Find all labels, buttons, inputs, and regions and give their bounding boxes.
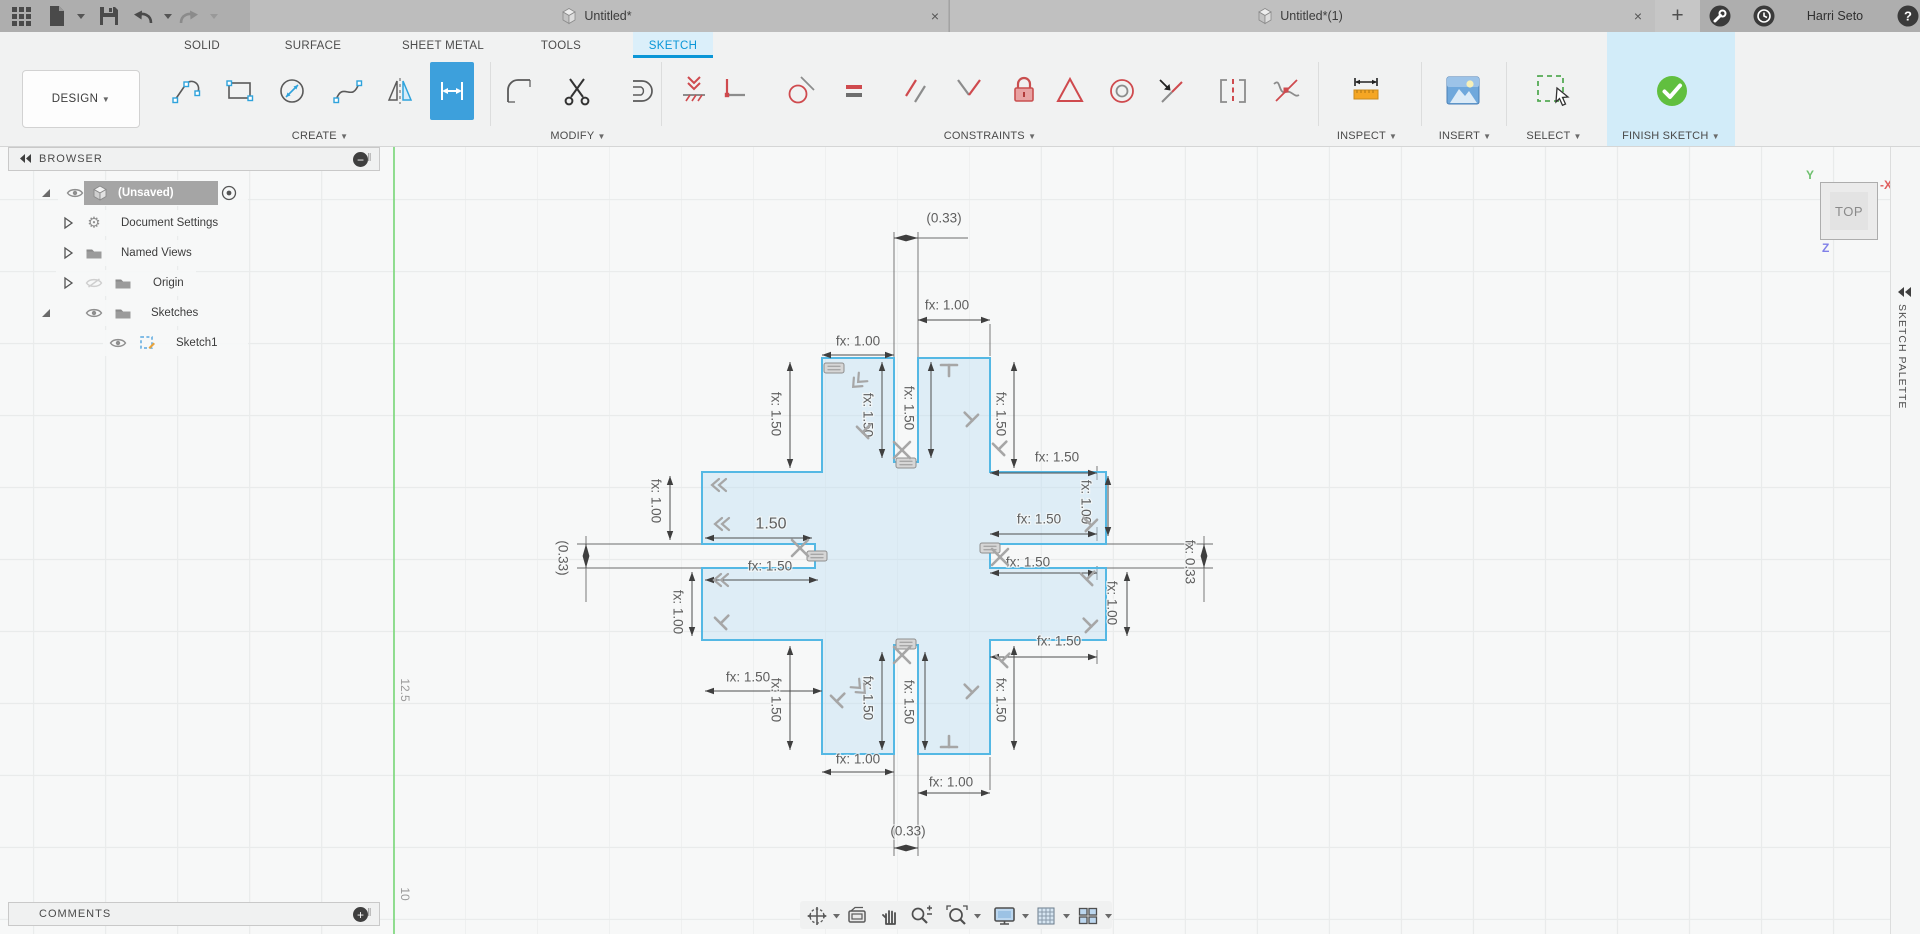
row-label: Document Settings xyxy=(121,210,218,236)
dimension-value[interactable]: fx: 1.50 xyxy=(994,392,1009,436)
visibility-eye-icon[interactable] xyxy=(67,187,84,199)
document-cube-icon xyxy=(91,184,109,202)
dimension-value[interactable]: fx: 1.50 xyxy=(1006,555,1050,570)
svg-text:?: ? xyxy=(1904,9,1912,24)
ribbon-tab-surface[interactable]: SURFACE xyxy=(285,34,341,58)
navigation-bar xyxy=(800,901,1112,929)
group-divider xyxy=(1318,62,1319,126)
browser-row-unsaved[interactable]: (Unsaved) xyxy=(8,180,380,206)
constraint-glyph-eq[interactable] xyxy=(824,363,844,373)
dimension-value[interactable]: fx: 1.00 xyxy=(1105,581,1120,625)
browser-title: BROWSER xyxy=(39,148,103,170)
redo-caret-icon[interactable] xyxy=(201,3,227,29)
comments-bar[interactable]: COMMENTS + ‖ xyxy=(8,902,380,926)
group-label-finish-sketch[interactable]: FINISH SKETCH ▼ xyxy=(1622,130,1720,142)
viewcube-face-label: TOP xyxy=(1821,183,1877,239)
group-label-modify[interactable]: MODIFY ▼ xyxy=(550,130,605,142)
expand-closed-icon[interactable] xyxy=(61,276,75,290)
tangent-tool[interactable] xyxy=(779,62,823,120)
grid-major-line-y xyxy=(393,147,395,934)
dimension-value[interactable]: fx: 1.50 xyxy=(769,392,784,436)
dimension-value[interactable]: (0.33) xyxy=(926,211,961,226)
spline-tool[interactable] xyxy=(326,62,370,120)
display-settings-caret-icon[interactable] xyxy=(1022,912,1030,920)
visibility-eye-icon[interactable] xyxy=(86,307,103,319)
row-label: Named Views xyxy=(121,240,192,266)
dimension-value[interactable]: fx: 1.00 xyxy=(929,775,973,790)
perpendicular-tool[interactable] xyxy=(947,62,991,120)
redo-icon[interactable] xyxy=(176,3,202,29)
expand-closed-icon[interactable] xyxy=(61,216,75,230)
dimension-value[interactable]: (0.33) xyxy=(890,824,925,839)
viewcube-y-axis-label: Y xyxy=(1806,168,1814,182)
dimension-value[interactable]: fx: 1.00 xyxy=(1079,480,1094,524)
expand-open-icon[interactable] xyxy=(39,306,53,320)
visibility-eye-off-icon[interactable] xyxy=(86,277,103,289)
job-status-clock-icon[interactable] xyxy=(1753,5,1775,27)
sketch-palette-tab[interactable]: SKETCH PALETTE xyxy=(1896,304,1908,409)
line-tool[interactable] xyxy=(166,62,210,120)
ribbon-tab-sketch[interactable]: SKETCH xyxy=(649,34,697,58)
browser-header[interactable]: BROWSER − ‖ xyxy=(8,147,380,171)
horizontal-vertical-tool[interactable] xyxy=(713,62,757,120)
group-label-create[interactable]: CREATE ▼ xyxy=(292,130,348,142)
palette-expand-icon[interactable] xyxy=(1897,286,1913,298)
display-settings-nav-icon[interactable] xyxy=(993,904,1017,928)
symmetry-tool[interactable] xyxy=(1048,62,1092,120)
dimension-value[interactable]: fx: 1.50 xyxy=(902,386,917,430)
viewports-nav-icon[interactable] xyxy=(1076,904,1100,928)
close-tab-2-icon[interactable]: × xyxy=(1630,8,1646,24)
document-cube-icon xyxy=(1256,6,1274,26)
dimension-value[interactable]: (0.33) xyxy=(556,540,571,575)
fit-nav-icon[interactable] xyxy=(945,904,969,928)
activate-radio-icon[interactable] xyxy=(221,185,237,201)
fillet-tool[interactable] xyxy=(497,62,541,120)
expand-open-icon[interactable] xyxy=(39,186,53,200)
fit-caret-icon[interactable] xyxy=(974,912,982,920)
pan-nav-icon[interactable] xyxy=(879,904,903,928)
circle-tool[interactable] xyxy=(270,62,314,120)
visibility-eye-icon[interactable] xyxy=(110,337,127,349)
group-divider xyxy=(1421,62,1422,126)
dimension-value[interactable]: fx: 1.00 xyxy=(836,334,880,349)
document-tab-title: Untitled* xyxy=(584,9,631,23)
insert-image-tool[interactable] xyxy=(1441,62,1485,120)
select-tool[interactable] xyxy=(1531,62,1575,120)
row-label: Origin xyxy=(153,270,184,296)
expand-closed-icon[interactable] xyxy=(61,246,75,260)
dimension-value[interactable]: fx: 1.00 xyxy=(836,752,880,767)
equal-tool[interactable] xyxy=(832,62,876,120)
browser-row-origin[interactable]: Origin xyxy=(8,270,380,296)
titlebar: Untitled* × Untitled*(1) × + Harri Seto … xyxy=(0,0,1920,32)
dimension-value[interactable]: fx: 1.00 xyxy=(925,298,969,313)
fix-unfix-tool[interactable] xyxy=(1002,62,1046,120)
collinear-tool[interactable] xyxy=(1211,62,1255,120)
grid-scale-label: 12.5 xyxy=(398,677,412,703)
undo-icon[interactable] xyxy=(130,3,156,29)
grid-settings-caret-icon[interactable] xyxy=(1063,912,1071,920)
finish-sketch-tool[interactable] xyxy=(1650,62,1694,120)
constraint-glyph-eq[interactable] xyxy=(980,543,1000,553)
offset-tool[interactable] xyxy=(618,62,662,120)
sketch-icon xyxy=(139,335,156,352)
dimension-value[interactable]: fx: 1.50 xyxy=(726,670,770,685)
document-cube-icon xyxy=(560,6,578,26)
constraint-glyph-eq[interactable] xyxy=(807,551,827,561)
measure-tool[interactable] xyxy=(1344,62,1388,120)
dimension-value[interactable]: fx: 1.50 xyxy=(748,559,792,574)
group-divider xyxy=(490,62,491,126)
row-label: (Unsaved) xyxy=(118,180,174,206)
browser-collapse-icon[interactable] xyxy=(19,153,33,164)
parallel-tool[interactable] xyxy=(894,62,938,120)
ribbon-tab-tools[interactable]: TOOLS xyxy=(541,34,581,58)
dimension-value[interactable]: fx: 1.50 xyxy=(994,678,1009,722)
save-icon[interactable] xyxy=(96,3,122,29)
dimension-value[interactable]: fx: 1.50 xyxy=(1037,634,1081,649)
sketch-dimension-tool[interactable] xyxy=(430,62,474,120)
dimension-value[interactable]: 1.50 xyxy=(755,516,786,533)
folder-icon xyxy=(115,307,132,320)
dimension-value[interactable]: fx: 1.50 xyxy=(861,676,876,720)
rectangle-tool[interactable] xyxy=(218,62,262,120)
viewcube-z-axis-label: Z xyxy=(1822,241,1829,255)
folder-icon xyxy=(86,247,103,260)
dimension-value[interactable]: fx: 0.33 xyxy=(1183,540,1198,584)
group-label-constraints[interactable]: CONSTRAINTS ▼ xyxy=(944,130,1036,142)
close-tab-1-icon[interactable]: × xyxy=(927,8,943,24)
document-tab-2[interactable]: Untitled*(1) xyxy=(950,0,1655,32)
mirror-tool[interactable] xyxy=(378,62,422,120)
coincident-tool[interactable] xyxy=(672,62,716,120)
file-menu-caret-icon[interactable] xyxy=(68,3,94,29)
orbit-nav-icon[interactable] xyxy=(805,904,829,928)
dimension-value[interactable]: fx: 1.50 xyxy=(1035,450,1079,465)
gear-icon: ⚙ xyxy=(87,216,100,231)
ribbon-toolbar: DESIGN ▼ SOLIDSURFACESHEET METALTOOLSSKE… xyxy=(0,32,1920,147)
group-divider xyxy=(1506,62,1507,126)
document-tab-1[interactable]: Untitled* xyxy=(250,0,948,32)
ribbon-tab-sheet-metal[interactable]: SHEET METAL xyxy=(402,34,484,58)
ribbon-tab-solid[interactable]: SOLID xyxy=(184,34,220,58)
concentric-tool[interactable] xyxy=(1100,62,1144,120)
viewports-caret-icon[interactable] xyxy=(1105,912,1113,920)
group-label-select[interactable]: SELECT ▼ xyxy=(1526,130,1581,142)
browser-row-sketch1[interactable]: Sketch1 xyxy=(8,330,380,356)
browser-row-named-views[interactable]: Named Views xyxy=(8,240,380,266)
comments-add-icon[interactable]: + xyxy=(353,907,368,922)
grid-scale-label: 10 xyxy=(398,881,412,907)
viewcube[interactable]: TOP xyxy=(1820,182,1878,240)
row-label: Sketches xyxy=(151,300,198,326)
fusion360-window: Untitled* × Untitled*(1) × + Harri Seto … xyxy=(0,0,1920,934)
workspace-dropdown[interactable]: DESIGN ▼ xyxy=(22,70,140,128)
comments-drag-grip[interactable]: ‖ xyxy=(367,907,372,919)
zoom-nav-icon[interactable] xyxy=(909,904,933,928)
group-label-inspect[interactable]: INSPECT ▼ xyxy=(1337,130,1397,142)
group-label-insert[interactable]: INSERT ▼ xyxy=(1439,130,1492,142)
row-label: Sketch1 xyxy=(176,330,218,356)
folder-icon xyxy=(115,277,132,290)
dimension-value[interactable]: fx: 1.50 xyxy=(902,680,917,724)
dimension-value[interactable]: fx: 1.00 xyxy=(671,590,686,634)
browser-drag-grip[interactable]: ‖ xyxy=(367,152,372,164)
constraint-glyph-eq[interactable] xyxy=(896,458,916,468)
comments-title: COMMENTS xyxy=(39,903,111,925)
document-tab-title: Untitled*(1) xyxy=(1280,9,1343,23)
constraint-glyph-eq[interactable] xyxy=(896,639,916,649)
user-account-button[interactable]: Harri Seto xyxy=(1800,0,1870,32)
dimension-value[interactable]: fx: 1.00 xyxy=(649,479,664,523)
dimension-value[interactable]: fx: 1.50 xyxy=(1017,512,1061,527)
extensions-icon[interactable] xyxy=(1709,5,1731,27)
file-menu-icon[interactable] xyxy=(44,3,70,29)
grid-settings-nav-icon[interactable] xyxy=(1034,904,1058,928)
app-grid-icon[interactable] xyxy=(8,3,34,29)
sketch-palette-strip xyxy=(1890,147,1920,934)
new-tab-button[interactable]: + xyxy=(1655,0,1700,32)
dimension-value[interactable]: fx: 1.50 xyxy=(769,678,784,722)
browser-row-document-settings[interactable]: ⚙Document Settings xyxy=(8,210,380,236)
midpoint-tool[interactable] xyxy=(1149,62,1193,120)
orbit-caret-icon[interactable] xyxy=(833,912,841,920)
browser-display-mode-icon[interactable]: − xyxy=(353,152,368,167)
browser-row-sketches[interactable]: Sketches xyxy=(8,300,380,326)
curvature-tool[interactable] xyxy=(1264,62,1308,120)
look-at-nav-icon[interactable] xyxy=(845,904,869,928)
trim-tool[interactable] xyxy=(555,62,599,120)
help-icon[interactable]: ? xyxy=(1897,5,1919,27)
